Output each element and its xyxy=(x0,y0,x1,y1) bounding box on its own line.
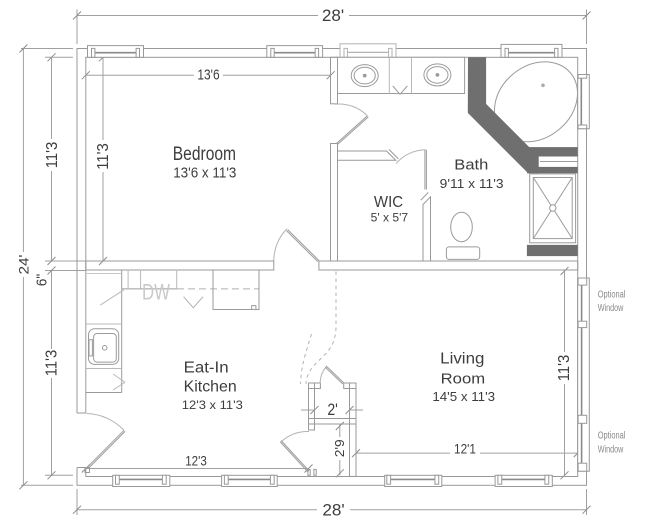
svg-text:11'3: 11'3 xyxy=(95,143,112,170)
svg-text:11'3: 11'3 xyxy=(43,350,60,377)
svg-text:11'3: 11'3 xyxy=(44,142,61,169)
svg-text:14'5 x 11'3: 14'5 x 11'3 xyxy=(432,389,495,404)
svg-text:Eat-In: Eat-In xyxy=(184,359,229,376)
svg-text:5' x 5'7: 5' x 5'7 xyxy=(371,212,409,224)
svg-text:Living: Living xyxy=(440,351,484,368)
svg-text:12'1: 12'1 xyxy=(454,440,476,456)
svg-text:24': 24' xyxy=(15,255,31,275)
svg-text:12'3: 12'3 xyxy=(185,452,207,468)
svg-text:Bath: Bath xyxy=(454,156,488,173)
svg-text:28': 28' xyxy=(322,7,344,25)
svg-text:Room: Room xyxy=(441,371,486,388)
svg-text:Window: Window xyxy=(598,444,624,455)
svg-text:2'9: 2'9 xyxy=(333,439,347,457)
svg-text:9'11 x 11'3: 9'11 x 11'3 xyxy=(440,176,504,191)
svg-text:Optional: Optional xyxy=(598,290,626,301)
svg-text:13'6: 13'6 xyxy=(197,67,219,84)
svg-text:Optional: Optional xyxy=(598,431,626,442)
svg-text:2': 2' xyxy=(327,401,338,419)
svg-text:6": 6" xyxy=(34,274,51,287)
svg-text:13'6 x 11'3: 13'6 x 11'3 xyxy=(173,166,236,182)
svg-text:Bedroom: Bedroom xyxy=(173,143,236,165)
svg-text:28': 28' xyxy=(322,501,344,519)
svg-text:12'3 x 11'3: 12'3 x 11'3 xyxy=(182,398,243,412)
svg-text:11'3: 11'3 xyxy=(556,355,573,382)
svg-text:WIC: WIC xyxy=(374,194,403,211)
svg-text:DW: DW xyxy=(142,280,170,305)
svg-text:Kitchen: Kitchen xyxy=(184,379,237,396)
svg-text:Window: Window xyxy=(598,303,624,314)
